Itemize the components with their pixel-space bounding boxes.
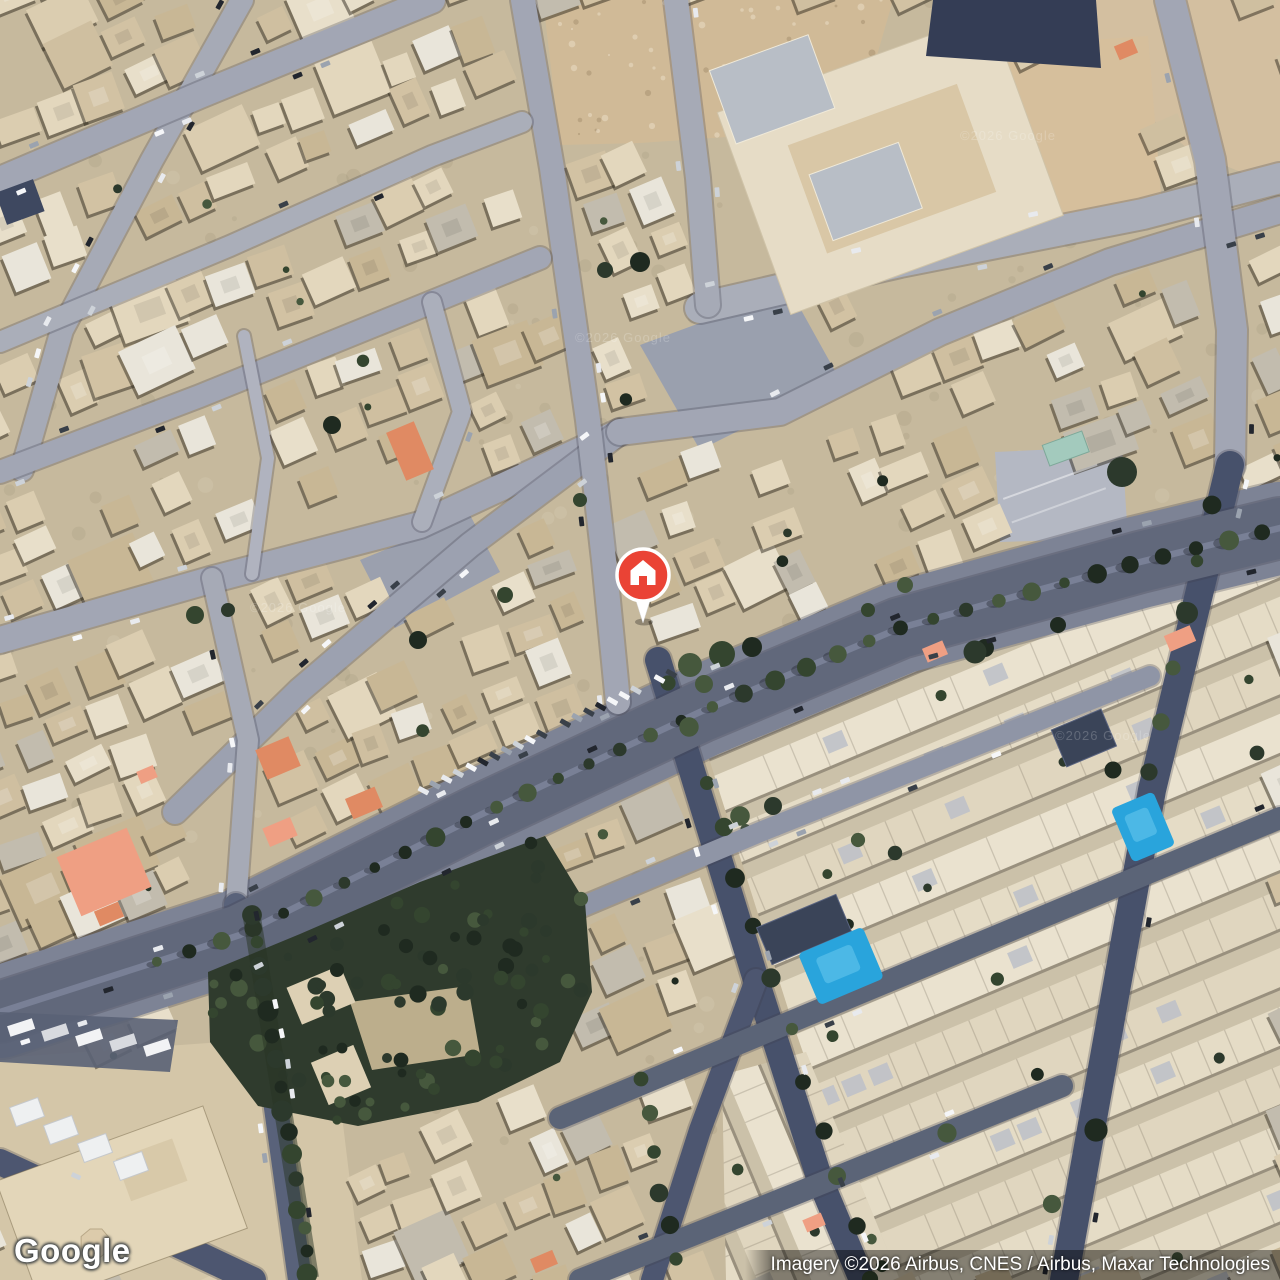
satellite-imagery (0, 0, 1280, 1280)
satellite-map[interactable]: ©2026 Google ©2026 Google ©2026 Google ©… (0, 0, 1280, 1280)
google-logo[interactable]: Google (14, 1232, 131, 1270)
imagery-attribution: Imagery ©2026 Airbus, CNES / Airbus, Max… (745, 1250, 1280, 1280)
